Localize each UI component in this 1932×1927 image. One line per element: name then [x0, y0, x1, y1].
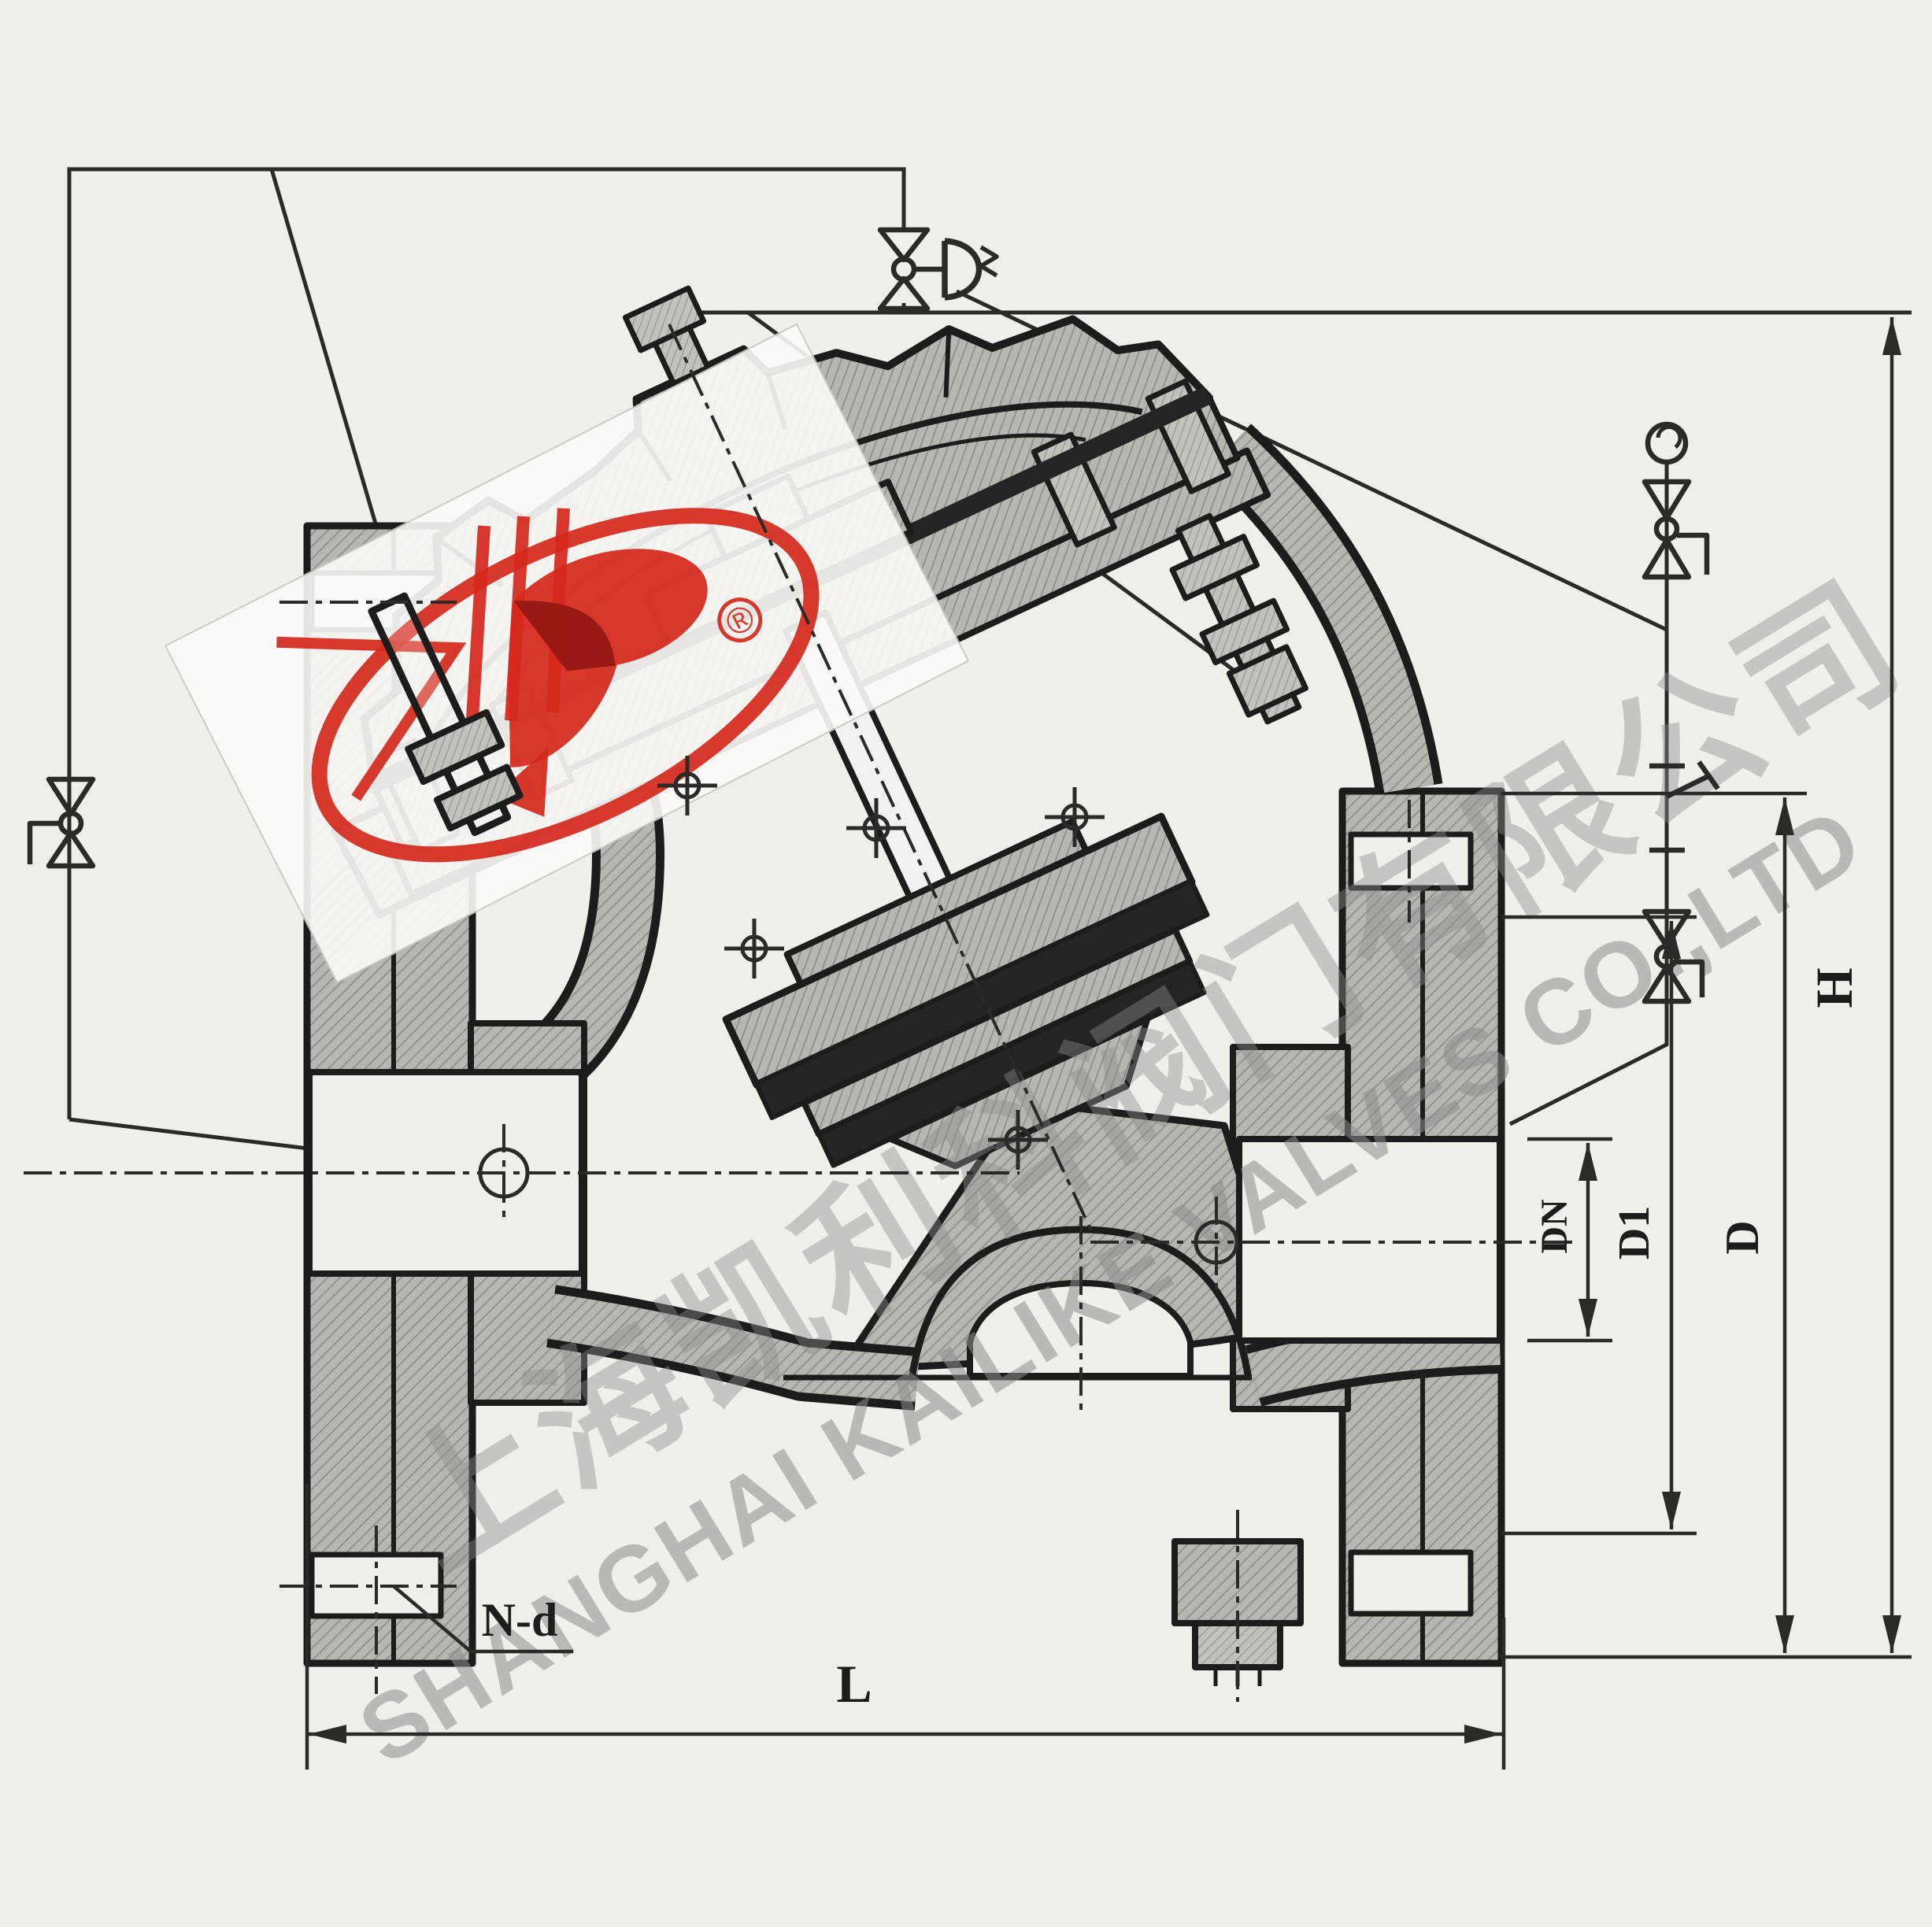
valve-engineering-drawing: ® 上海凯利科阀门有限公司 SHANGHAI KAILIKE VALVES CO… [0, 0, 1932, 1927]
dim-label-Nd: N-d [482, 1594, 558, 1646]
dim-label-L: L [836, 1654, 872, 1714]
dim-label-H: H [1806, 967, 1864, 1008]
dim-label-D1: D1 [1610, 1206, 1659, 1259]
dim-label-DN: DN [1534, 1199, 1575, 1254]
drawing-sheet: ® 上海凯利科阀门有限公司 SHANGHAI KAILIKE VALVES CO… [0, 0, 1932, 1927]
dim-label-D: D [1716, 1220, 1768, 1254]
